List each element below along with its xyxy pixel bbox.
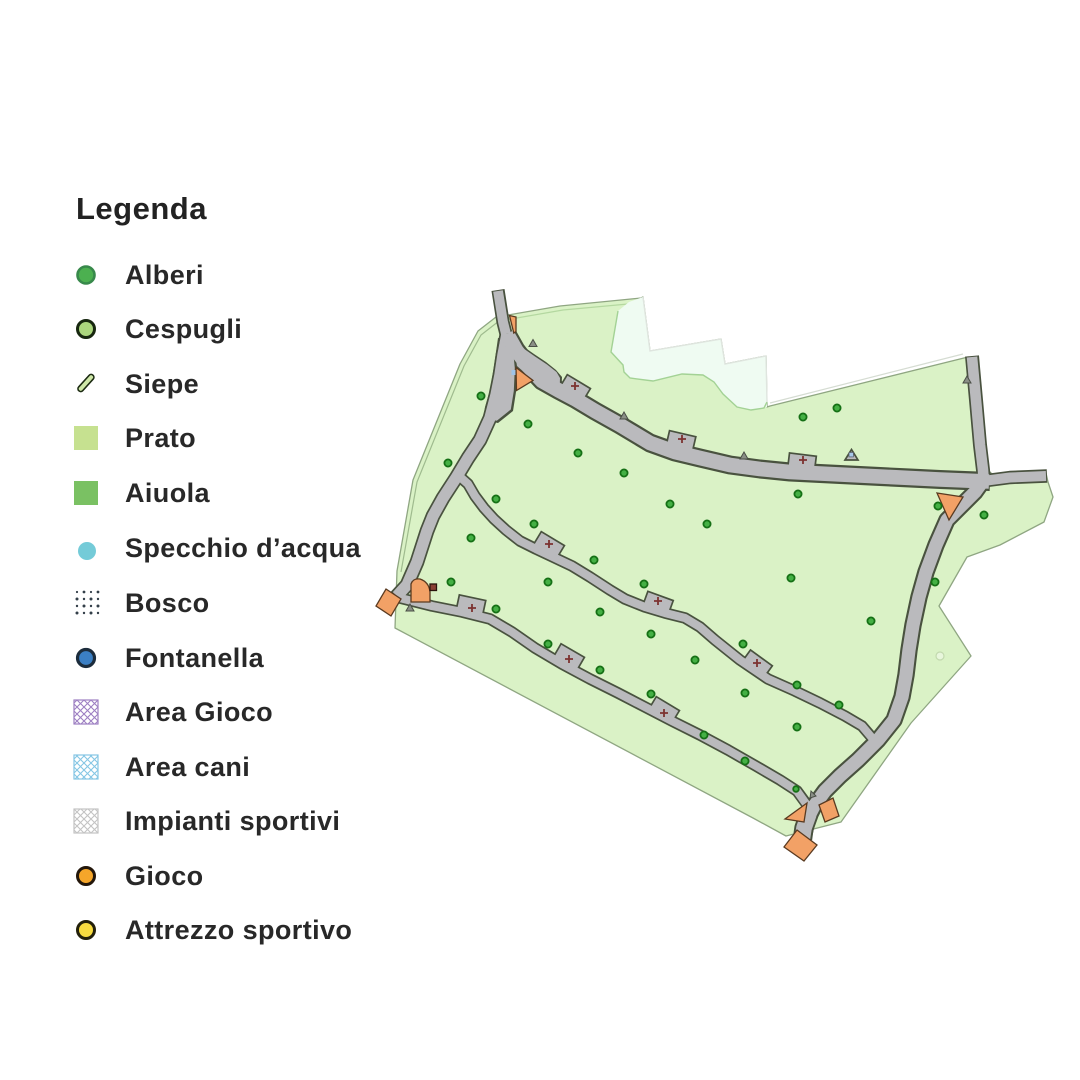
svg-text:Bosco: Bosco <box>125 588 210 618</box>
svg-text:Legenda: Legenda <box>76 191 207 226</box>
svg-text:Siepe: Siepe <box>125 369 199 399</box>
svg-text:Aiuola: Aiuola <box>125 478 210 508</box>
svg-text:Alberi: Alberi <box>125 260 204 290</box>
svg-text:Cespugli: Cespugli <box>125 314 242 344</box>
svg-text:Area Gioco: Area Gioco <box>125 697 273 727</box>
svg-text:Gioco: Gioco <box>125 861 204 891</box>
svg-text:Impianti sportivi: Impianti sportivi <box>125 806 340 836</box>
svg-text:Attrezzo sportivo: Attrezzo sportivo <box>125 915 352 945</box>
svg-text:Area cani: Area cani <box>125 752 250 782</box>
svg-text:Fontanella: Fontanella <box>125 643 265 673</box>
svg-text:Specchio d’acqua: Specchio d’acqua <box>125 533 362 563</box>
svg-text:Prato: Prato <box>125 423 196 453</box>
